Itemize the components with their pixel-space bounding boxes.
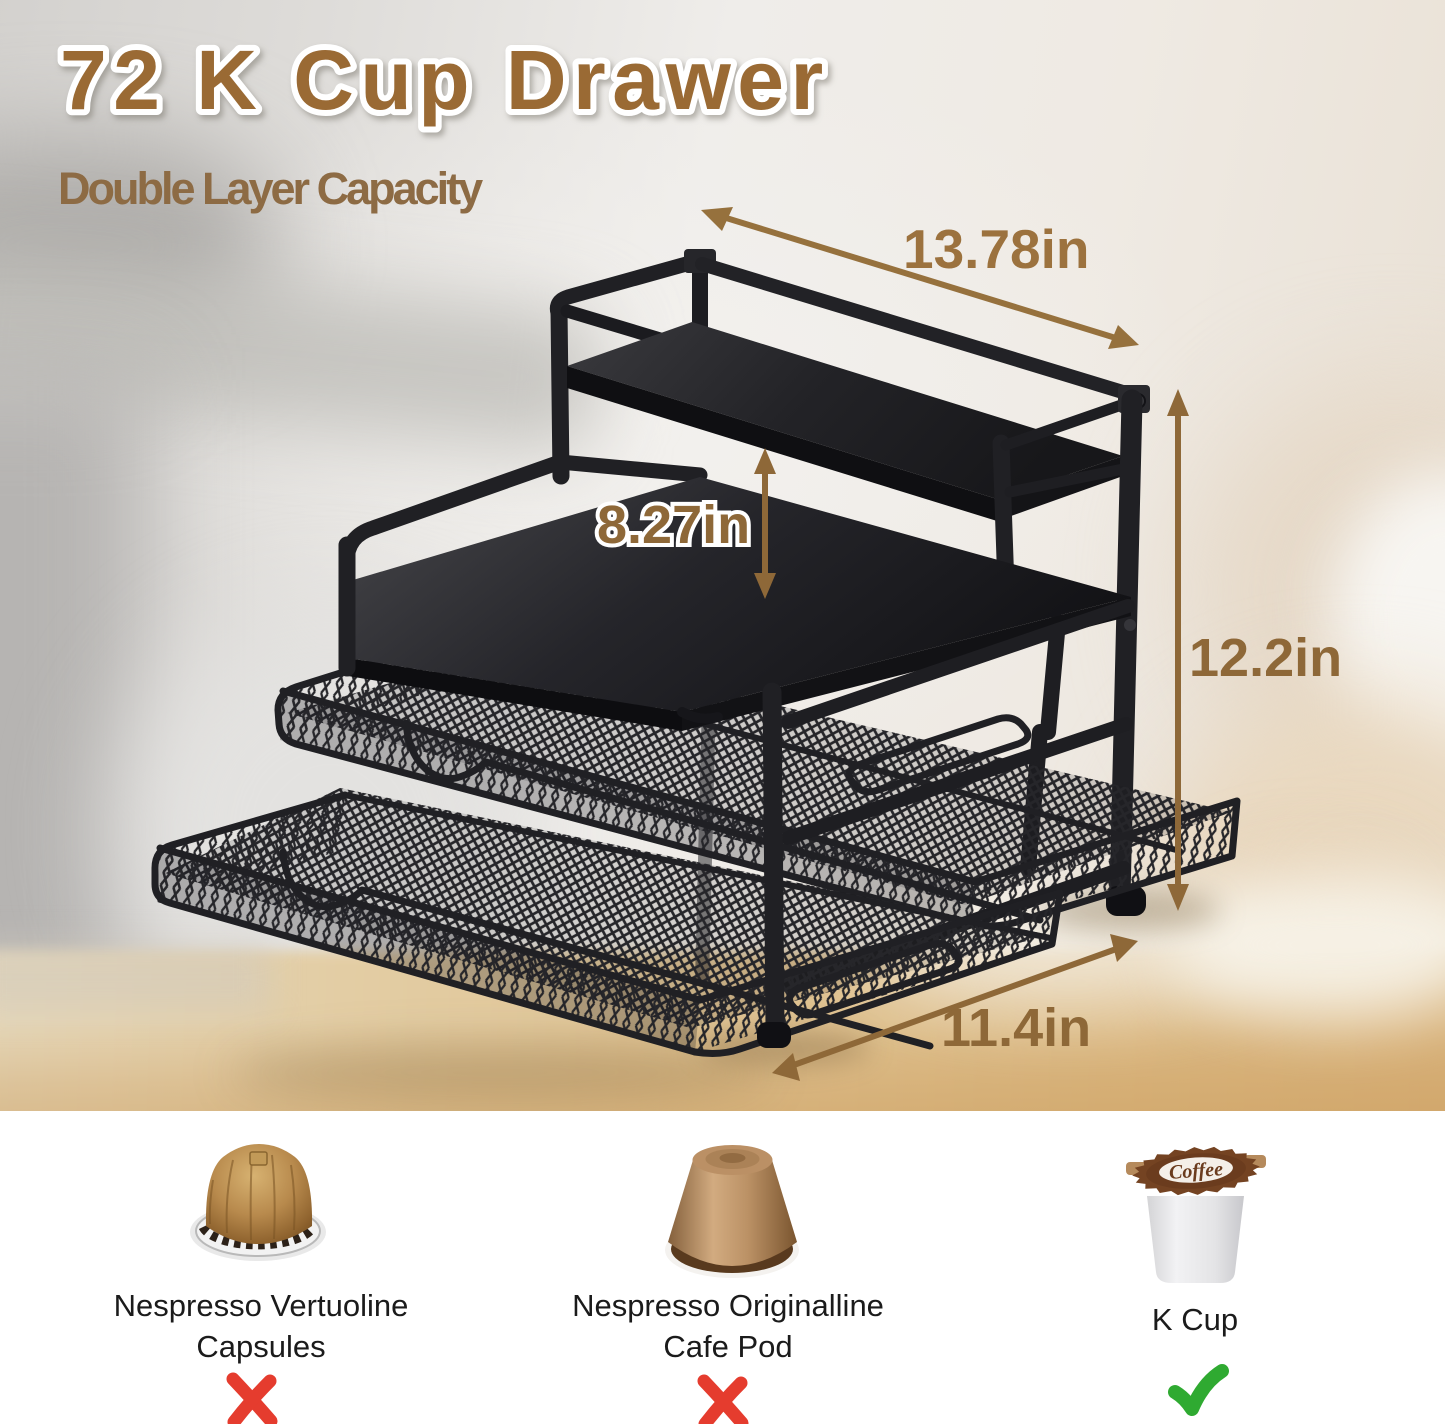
svg-text:72 K Cup Drawer: 72 K Cup Drawer [60,33,830,127]
svg-text:13.78in: 13.78in [903,218,1090,280]
svg-text:Nespresso Vertuoline: Nespresso Vertuoline [114,1288,409,1323]
svg-text:K Cup: K Cup [1152,1302,1238,1337]
svg-text:Double Layer Capacity: Double Layer Capacity [58,163,483,214]
svg-text:Cafe Pod: Cafe Pod [663,1329,792,1364]
svg-text:8.27in: 8.27in [597,495,750,555]
svg-text:Capsules: Capsules [196,1329,325,1364]
svg-text:Coffee: Coffee [1168,1158,1224,1184]
svg-text:11.4in: 11.4in [941,998,1091,1058]
svg-text:Nespresso Originalline: Nespresso Originalline [572,1288,884,1323]
svg-text:12.2in: 12.2in [1189,628,1342,688]
